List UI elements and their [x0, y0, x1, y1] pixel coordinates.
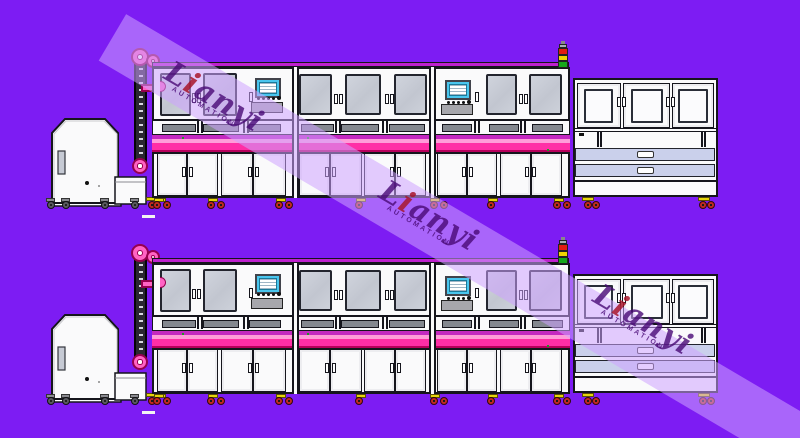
drawer-handle — [637, 151, 654, 158]
caster-wheel — [355, 397, 363, 405]
sensor-dot — [307, 333, 309, 335]
leveling-foot — [582, 393, 594, 397]
sensor-dot — [547, 149, 549, 151]
door-handle — [325, 363, 329, 373]
door-handle — [524, 94, 528, 104]
module-gap — [292, 263, 299, 394]
caster-wheel — [207, 397, 215, 405]
station-band-divider — [701, 132, 706, 147]
recessed-panel — [341, 320, 379, 328]
door-handle — [462, 167, 466, 177]
recessed-panel — [203, 320, 239, 328]
hopper-knob — [85, 377, 89, 381]
door-handle — [255, 363, 259, 373]
caster-wheel — [62, 397, 70, 405]
station-band-divider — [701, 328, 706, 343]
band-divider — [197, 121, 203, 133]
hmi-keyboard-tray — [251, 298, 283, 309]
station-band-divider — [597, 132, 602, 147]
recessed-panel — [301, 320, 334, 328]
door-handle — [525, 363, 529, 373]
door-handle — [248, 167, 252, 177]
door-handle — [334, 290, 338, 300]
caster-wheel — [487, 397, 495, 405]
door-handle — [182, 167, 186, 177]
caster-wheel — [285, 397, 293, 405]
module3-window-left — [486, 74, 517, 115]
hmi-button — [277, 292, 281, 296]
door-handle — [189, 167, 193, 177]
caster-wheel — [553, 397, 561, 405]
band-divider — [197, 317, 203, 329]
door-handle — [385, 94, 389, 104]
door-handle — [475, 92, 479, 102]
tower-green-light — [558, 257, 568, 264]
hmi-button — [277, 96, 281, 100]
hmi-screen — [449, 84, 467, 96]
recessed-panel — [389, 124, 425, 132]
tower-red-light — [558, 244, 568, 251]
door-handle — [397, 363, 401, 373]
tower-red-light — [558, 48, 568, 55]
caster-wheel — [163, 397, 171, 405]
station-latch — [579, 133, 584, 136]
recessed-panel — [532, 124, 563, 132]
door-handle — [462, 363, 466, 373]
caster-wheel — [563, 397, 571, 405]
band-divider — [474, 317, 480, 329]
door-handle — [249, 288, 253, 298]
hopper-slot-window — [58, 347, 65, 370]
band-divider — [382, 121, 388, 133]
door-handle — [617, 97, 621, 107]
tower-green-light — [558, 61, 568, 68]
sensor-dot — [547, 345, 549, 347]
module1-window-left — [160, 269, 191, 312]
hmi-keyboard-tray — [441, 300, 473, 311]
module2-window-2 — [345, 74, 381, 115]
door-handle — [475, 288, 479, 298]
caster-wheel — [584, 397, 592, 405]
band-divider — [520, 121, 526, 133]
module2-window-1 — [299, 74, 332, 115]
scale-dash — [142, 411, 155, 414]
door-handle — [622, 97, 626, 107]
hmi-screen — [259, 82, 277, 94]
hmi-button — [262, 293, 265, 296]
sensor-dot — [182, 333, 184, 335]
hopper-slot-window — [58, 151, 65, 174]
recessed-panel — [442, 320, 472, 328]
caster-wheel — [47, 397, 55, 405]
module2-window-3 — [394, 270, 427, 311]
module3-window-right — [529, 74, 562, 115]
line-mid-band — [152, 316, 570, 331]
door-handle — [332, 363, 336, 373]
recessed-panel — [341, 124, 379, 132]
recessed-panel — [489, 124, 519, 132]
hmi-screen — [449, 280, 467, 292]
door-handle — [182, 363, 186, 373]
hmi-button — [257, 293, 260, 296]
caster-wheel — [131, 397, 139, 405]
elevator-bottom-pulley — [132, 354, 148, 370]
caster-wheel — [275, 397, 283, 405]
recessed-panel — [249, 320, 281, 328]
door-handle — [339, 290, 343, 300]
hmi-keyboard-tray — [441, 104, 473, 115]
hopper-knob — [85, 181, 89, 185]
recessed-panel — [389, 320, 425, 328]
station-base-line — [575, 180, 716, 182]
module-gap — [429, 67, 436, 198]
band-divider — [335, 121, 341, 133]
elevator-bottom-pulley — [132, 158, 148, 174]
elevator-chain — [134, 253, 147, 365]
band-divider — [382, 317, 388, 329]
band-divider — [474, 121, 480, 133]
door-handle — [671, 293, 675, 303]
door-handle — [469, 167, 473, 177]
sensor-dot — [182, 137, 184, 139]
hopper-speck — [98, 185, 100, 187]
hmi-button — [272, 293, 275, 296]
door-handle — [192, 289, 196, 299]
caster-wheel — [153, 397, 161, 405]
door-handle — [197, 289, 201, 299]
door-handle — [519, 94, 523, 104]
recessed-panel — [442, 124, 472, 132]
band-divider — [520, 317, 526, 329]
door-handle — [255, 167, 259, 177]
door-handle — [532, 363, 536, 373]
station-window — [678, 285, 708, 319]
module-gap — [429, 263, 436, 394]
caster-wheel — [217, 397, 225, 405]
door-handle — [339, 94, 343, 104]
module1-window-right — [203, 269, 237, 312]
caster-wheel — [440, 397, 448, 405]
recessed-panel — [162, 320, 196, 328]
hopper-speck — [98, 381, 100, 383]
hmi-button — [267, 293, 270, 296]
band-divider — [335, 317, 341, 329]
band-divider — [243, 317, 249, 329]
caster-wheel — [101, 397, 109, 405]
drawer-handle — [637, 167, 654, 174]
recessed-panel — [162, 124, 196, 132]
recessed-panel — [489, 320, 519, 328]
module2-window-3 — [394, 74, 427, 115]
station-window — [584, 89, 613, 123]
module2-window-2 — [345, 270, 381, 311]
station-window — [631, 89, 663, 123]
door-handle — [525, 167, 529, 177]
door-handle — [248, 363, 252, 373]
door-handle — [532, 167, 536, 177]
door-handle — [189, 363, 193, 373]
module2-window-1 — [299, 270, 332, 311]
door-handle — [666, 293, 670, 303]
hmi-screen — [259, 278, 277, 290]
cad-drawing-canvas: Lianyi AUTOMATION Lianyi AUTOMATION Lian… — [0, 0, 800, 438]
door-handle — [666, 97, 670, 107]
station-window — [678, 89, 708, 123]
door-handle — [469, 363, 473, 373]
door-handle — [390, 363, 394, 373]
caster-wheel — [592, 397, 600, 405]
caster-wheel — [430, 397, 438, 405]
door-handle — [385, 290, 389, 300]
door-handle — [671, 97, 675, 107]
door-handle — [334, 94, 338, 104]
